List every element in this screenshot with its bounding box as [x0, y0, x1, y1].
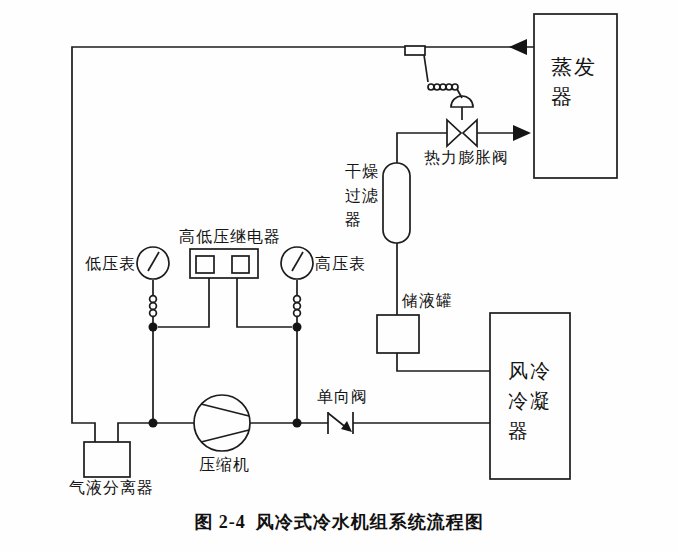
dry-filter-capsule [383, 163, 410, 243]
figure-caption: 图 2-4风冷式冷水机组系统流程图 [0, 510, 678, 534]
flow-arrow-suction-icon [509, 39, 527, 55]
expansion-valve-right-icon [463, 120, 477, 146]
high-gauge-needle-icon [292, 252, 303, 271]
low-pressure-gauge-label: 低压表 [85, 252, 136, 276]
relay-label: 高低压继电器 [179, 225, 281, 249]
flow-diagram: 蒸发器 风冷冷凝器 干燥过滤器 储液罐 热力膨胀阀 单向阀 压缩机 气液分离器 … [0, 0, 678, 552]
evaporator-label: 蒸发器 [551, 52, 597, 112]
separator-box [84, 442, 130, 477]
figure-number: 图 2-4 [194, 512, 246, 532]
junction-dot-suction [149, 419, 158, 428]
condenser-label: 风冷冷凝器 [508, 356, 552, 446]
high-pressure-gauge-label: 高压表 [315, 252, 366, 276]
junction-dot-low [149, 323, 158, 332]
relay-switch-right-icon [232, 256, 249, 273]
high-gauge-coil-icon [294, 296, 301, 317]
check-valve-label: 单向阀 [317, 385, 368, 409]
relay-switch-left-icon [196, 256, 214, 273]
junction-dot-discharge [293, 419, 302, 428]
receiver-box [377, 315, 419, 353]
compressor-circle [194, 395, 250, 451]
check-valve-arrow-icon [341, 421, 352, 432]
compressor-label: 压缩机 [199, 453, 250, 477]
compressor-vanes-icon [201, 404, 249, 442]
sensor-bulb-icon [405, 46, 425, 55]
dry-filter-label: 干燥过滤器 [345, 160, 379, 232]
condenser-to-receiver-pipe-line [397, 353, 490, 371]
capillary-coil-icon [428, 84, 458, 90]
capillary-line [424, 55, 428, 82]
flow-arrow-evap-inlet-icon [513, 125, 531, 141]
relay-high-wire-line [237, 278, 292, 327]
low-gauge-coil-icon [150, 296, 157, 317]
expansion-valve-left-icon [447, 120, 461, 146]
separator-label: 气液分离器 [69, 476, 154, 500]
low-gauge-needle-icon [148, 252, 159, 271]
expansion-valve-label: 热力膨胀阀 [424, 146, 509, 170]
figure-title: 风冷式冷水机组系统流程图 [256, 512, 484, 532]
relay-low-wire-line [158, 278, 209, 327]
receiver-label: 储液罐 [402, 289, 453, 313]
junction-dot-high [293, 323, 302, 332]
